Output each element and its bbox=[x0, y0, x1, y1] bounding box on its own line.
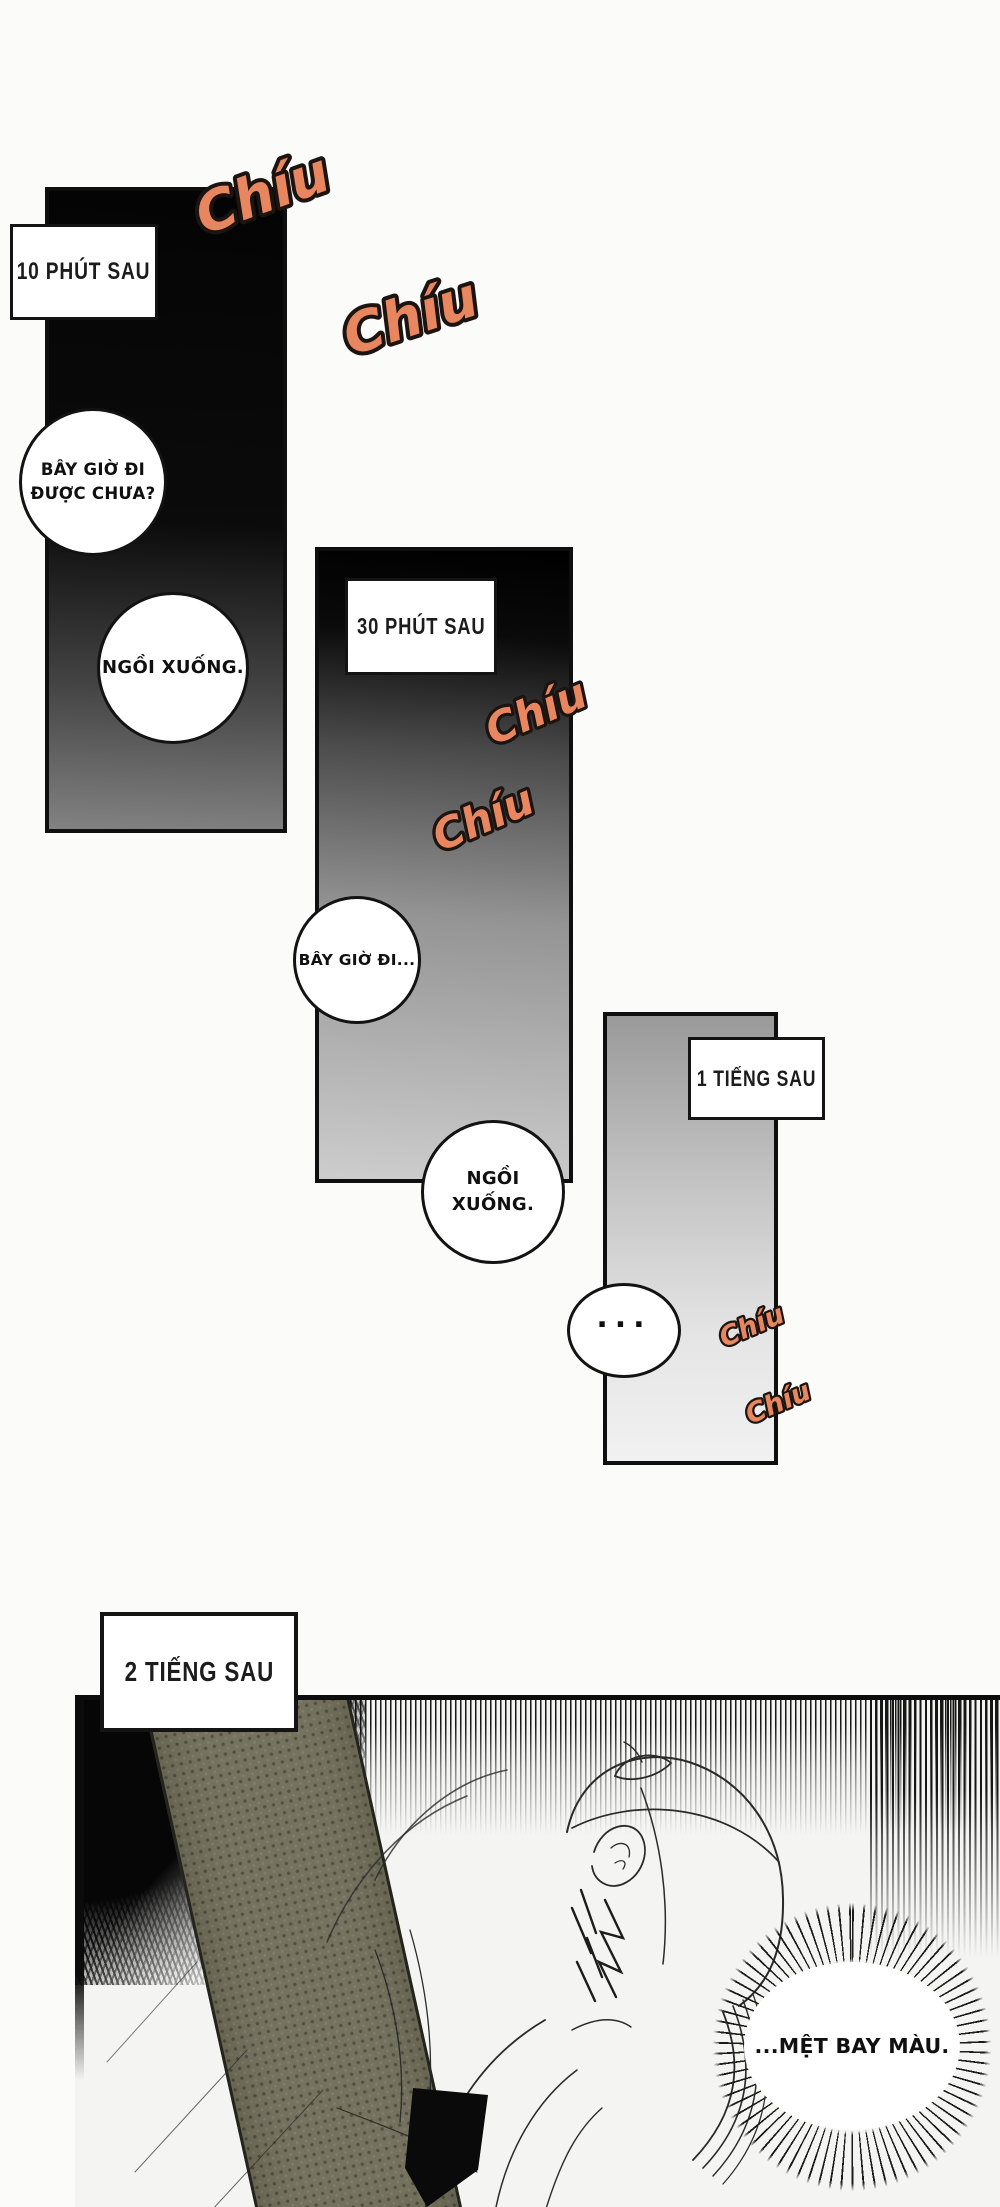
speech-line: ... bbox=[596, 1296, 651, 1340]
speech-bubble-ellipsis: ... bbox=[567, 1283, 681, 1378]
speech-line: BÂY GIỜ ĐI... bbox=[299, 949, 416, 971]
speech-bubble-now-can-we: BÂY GIỜ ĐI... bbox=[293, 896, 421, 1024]
speech-bubble-now-can-we-go: BÂY GIỜ ĐI ĐƯỢC CHƯA? bbox=[19, 408, 167, 556]
burst-speech-text: ...MỆT BAY MÀU. bbox=[755, 2034, 950, 2058]
svg-text:Chíu: Chíu bbox=[335, 265, 486, 368]
speech-line: NGỒI XUỐNG. bbox=[102, 655, 244, 681]
time-caption-text: 10 PHÚT SAU bbox=[17, 258, 151, 286]
speech-bubble-sit-down-2: NGỒI XUỐNG. bbox=[421, 1120, 565, 1264]
speech-line: ĐƯỢC CHƯA? bbox=[31, 482, 156, 506]
speech-bubble-sit-down-1: NGỒI XUỐNG. bbox=[97, 592, 249, 744]
speech-line: NGỒI XUỐNG. bbox=[424, 1166, 562, 1218]
burst-speech-bubble: ...MỆT BAY MÀU. bbox=[744, 1962, 960, 2130]
speech-line: BÂY GIỜ ĐI bbox=[31, 458, 156, 482]
svg-text:Chíu: Chíu bbox=[187, 140, 338, 247]
time-caption-text: 2 TIẾNG SAU bbox=[124, 1656, 273, 1688]
time-caption-30-minutes: 30 PHÚT SAU bbox=[345, 578, 497, 675]
svg-text:Chíu: Chíu bbox=[478, 668, 594, 754]
time-caption-2-hours: 2 TIẾNG SAU bbox=[100, 1612, 298, 1732]
time-caption-text: 1 TIẾNG SAU bbox=[697, 1066, 816, 1092]
svg-text:Chíu: Chíu bbox=[741, 1376, 815, 1431]
panel-2-hours: ...MỆT BAY MÀU. bbox=[75, 1695, 1000, 2207]
time-caption-1-hour: 1 TIẾNG SAU bbox=[688, 1037, 825, 1120]
time-caption-text: 30 PHÚT SAU bbox=[357, 613, 485, 640]
comic-page: ...MỆT BAY MÀU. 10 PHÚT SAU 30 PHÚT SAU … bbox=[0, 0, 1000, 2207]
time-caption-10-minutes: 10 PHÚT SAU bbox=[10, 224, 158, 320]
sfx-chiu-2: Chíu bbox=[303, 229, 514, 393]
